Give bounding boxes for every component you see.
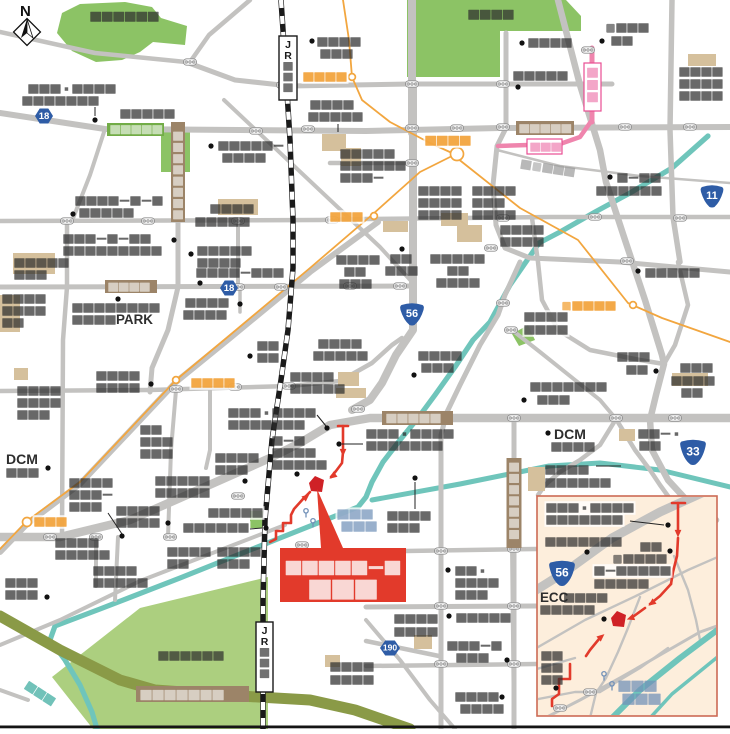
- svg-text:56: 56: [555, 565, 569, 579]
- svg-text:33: 33: [686, 444, 700, 458]
- svg-text:11: 11: [706, 190, 718, 202]
- svg-text:R: R: [284, 50, 292, 62]
- svg-text:R: R: [261, 636, 269, 648]
- svg-text:DCM: DCM: [6, 451, 38, 467]
- svg-text:18: 18: [224, 283, 235, 294]
- svg-text:190: 190: [383, 643, 397, 653]
- svg-text:DCM: DCM: [554, 426, 586, 442]
- svg-text:N: N: [20, 3, 31, 20]
- svg-text:PARK: PARK: [116, 312, 153, 327]
- svg-text:18: 18: [39, 111, 50, 122]
- svg-text:56: 56: [406, 308, 418, 320]
